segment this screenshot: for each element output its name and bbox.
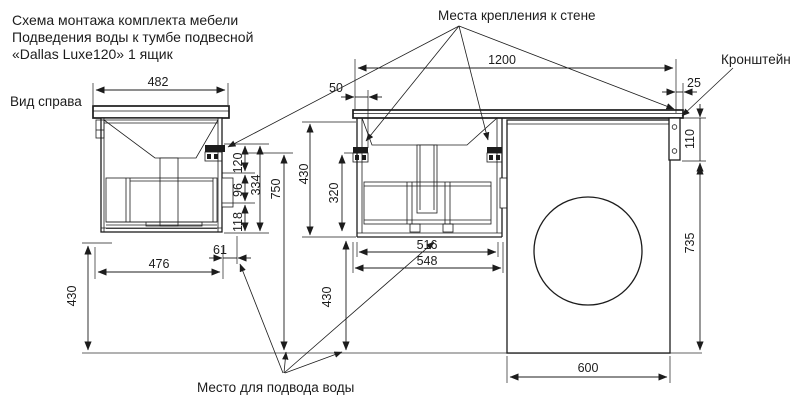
dim-50: 50: [329, 81, 343, 95]
drawing-canvas: Схема монтажа комплекта мебели Подведени…: [0, 0, 800, 401]
dim-430-front-lower: 430: [320, 287, 334, 308]
dim-430-left: 430: [65, 286, 79, 307]
dim-476: 476: [149, 257, 170, 271]
title-line-2: Подведения воды к тумбе подвесной: [12, 29, 253, 45]
wall-mount-label: Места крепления к стене: [438, 8, 596, 23]
dim-61: 61: [213, 243, 227, 257]
dim-735: 735: [683, 233, 697, 254]
mounting-scheme-drawing: Схема монтажа комплекта мебели Подведени…: [0, 0, 800, 401]
side-view-cabinet: [93, 106, 233, 232]
title-block: Схема монтажа комплекта мебели Подведени…: [12, 12, 253, 62]
dim-25: 25: [687, 76, 701, 90]
dim-750: 750: [269, 179, 283, 200]
dim-110: 110: [683, 129, 697, 149]
dim-482: 482: [148, 75, 169, 89]
dim-334: 334: [249, 175, 263, 196]
dim-320: 320: [327, 183, 341, 204]
dim-1200: 1200: [488, 53, 516, 67]
dim-118: 118: [231, 212, 245, 232]
title-line-3: «Dallas Luxe120» 1 ящик: [12, 46, 174, 62]
dim-430-front-upper: 430: [297, 164, 311, 185]
dim-600: 600: [578, 361, 599, 375]
dim-548: 548: [417, 254, 438, 268]
title-line-1: Схема монтажа комплекта мебели: [12, 12, 238, 28]
dim-96: 96: [231, 183, 245, 197]
washing-machine: [507, 120, 670, 353]
dim-516: 516: [417, 238, 438, 252]
view-right-label: Вид справа: [10, 94, 82, 109]
bracket-label: Кронштейн: [721, 52, 791, 67]
water-supply-label: Место для подвода воды: [197, 380, 354, 395]
dim-120: 120: [231, 153, 245, 174]
wall-bracket: [669, 118, 680, 160]
